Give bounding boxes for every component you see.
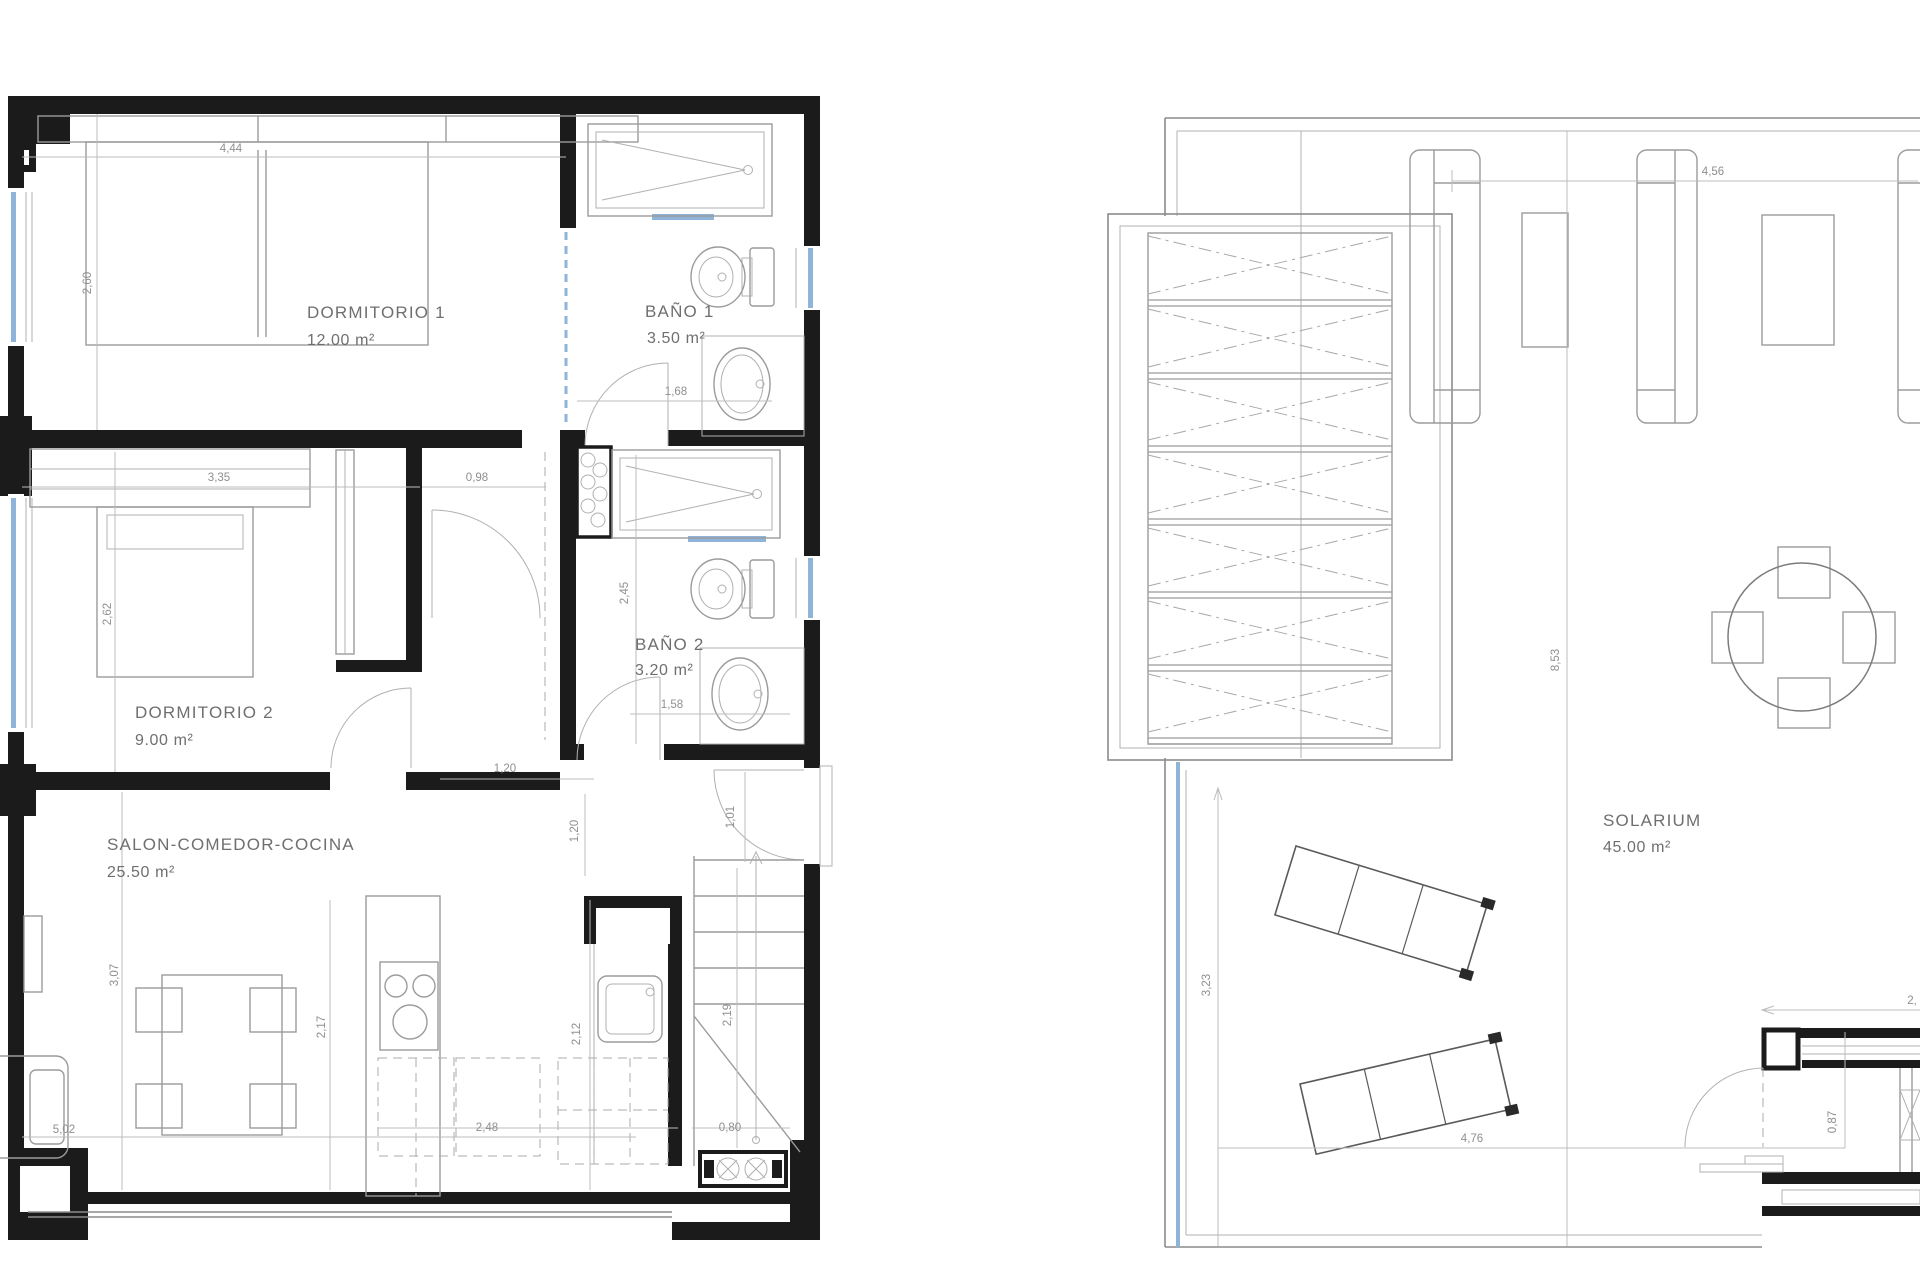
dim-salon-width: 5,02 — [53, 1124, 75, 1136]
dim-stair-width: 0,80 — [719, 1122, 741, 1134]
dim-lower-depth: 3,23 — [1201, 974, 1213, 996]
kitchen-sink-icon — [594, 944, 662, 1164]
room-area-dormitorio2: 9.00 m² — [135, 732, 194, 749]
coffee-table-icon — [1762, 215, 1834, 345]
toilet-icon — [691, 559, 774, 619]
outdoor-sofa-icon — [1898, 150, 1920, 423]
kitchen-counter — [366, 896, 440, 1196]
stairs-icon — [694, 852, 804, 1166]
dim-dorm2-width: 3,35 — [208, 472, 230, 484]
dim-dorm2-depth: 2,62 — [102, 603, 114, 625]
room-label-salon: SALON-COMEDOR-COCINA — [107, 835, 355, 854]
bano1-fixtures — [585, 124, 804, 446]
floor-plan-canvas: DORMITORIO 1 12.00 m² BAÑO 1 3.50 m² DOR… — [0, 0, 1920, 1280]
closet-icon — [30, 449, 310, 507]
dim-terrace-depth: 8,53 — [1550, 649, 1562, 671]
roof-boundary — [1165, 118, 1920, 1247]
floor-plan-page: DORMITORIO 1 12.00 m² BAÑO 1 3.50 m² DOR… — [0, 0, 1920, 1280]
dim-lower-width: 4,76 — [1461, 1133, 1483, 1145]
room-label-dormitorio2: DORMITORIO 2 — [135, 703, 274, 722]
dim-stair-depth: 2,19 — [722, 1004, 734, 1026]
dim-terrace-width: 4,56 — [1702, 166, 1724, 178]
room-area-bano2: 3.20 m² — [635, 662, 694, 679]
outdoor-seating — [1410, 150, 1920, 423]
toilet-icon — [691, 247, 774, 307]
room-area-salon: 25.50 m² — [107, 864, 175, 881]
room-labels: SOLARIUM 45.00 m² — [1603, 811, 1701, 856]
room-label-bano2: BAÑO 2 — [635, 635, 705, 654]
room-label-solarium: SOLARIUM — [1603, 811, 1701, 830]
closet-icon — [38, 116, 638, 142]
dim-salon-depth: 3,07 — [109, 964, 121, 986]
right-plan: SOLARIUM 45.00 m² 4,56 8,53 3,23 4,76 0,… — [1108, 118, 1920, 1247]
dim-dorm1-depth: 2,60 — [82, 272, 94, 294]
dim-bano2-depth: 2,45 — [619, 582, 631, 604]
shower-icon — [612, 450, 780, 538]
hall-door-arc — [432, 510, 540, 618]
dimension-labels: 4,56 8,53 3,23 4,76 0,87 2, — [1201, 166, 1917, 1145]
outdoor-sofa-icon — [1410, 150, 1480, 423]
boiler-closet-icon — [577, 447, 611, 537]
dim-stair-width: 2, — [1907, 995, 1917, 1007]
sink-icon — [700, 648, 804, 744]
dim-entry-depth: 1,20 — [569, 820, 581, 842]
door-arc — [585, 363, 668, 446]
dining-table-icon — [136, 975, 296, 1135]
door-arc — [577, 677, 660, 760]
dim-bano2-width: 1,58 — [661, 699, 683, 711]
bed-icon — [97, 507, 253, 677]
dim-kitchen-depth: 2,17 — [316, 1016, 328, 1038]
dim-entry-door: 1,01 — [725, 806, 737, 828]
door-arc — [331, 688, 411, 768]
door-arc — [1685, 1068, 1783, 1172]
dim-kitchen-pass: 1,20 — [494, 763, 516, 775]
sideboard-icon — [24, 916, 42, 992]
dim-dorm1-width: 4,44 — [220, 143, 243, 155]
coffee-table-icon — [1522, 213, 1568, 347]
dim-bano1-width: 1,68 — [665, 386, 687, 398]
stair-vestibule — [1685, 1028, 1920, 1216]
vent-grill-icon — [700, 1152, 786, 1186]
walls — [0, 96, 820, 1240]
wardrobe-icon — [336, 450, 354, 654]
shower-icon — [588, 124, 772, 216]
dim-counter-depth: 2,12 — [571, 1023, 583, 1045]
round-table-icon — [1712, 547, 1895, 728]
pergola-icon — [1108, 214, 1452, 760]
room-label-bano1: BAÑO 1 — [645, 302, 715, 321]
left-plan: DORMITORIO 1 12.00 m² BAÑO 1 3.50 m² DOR… — [0, 96, 832, 1240]
sun-lounger-icon — [1273, 840, 1496, 981]
room-area-bano1: 3.50 m² — [647, 330, 706, 347]
cooktop-icon — [380, 962, 438, 1050]
base-cabinets-dashed — [378, 1058, 668, 1196]
outdoor-sofa-icon — [1637, 150, 1697, 423]
sink-icon — [702, 336, 804, 436]
dim-stair-door: 0,87 — [1827, 1111, 1839, 1133]
room-area-dormitorio1: 12.00 m² — [307, 332, 375, 349]
dim-hall-width: 0,98 — [466, 472, 488, 484]
room-label-dormitorio1: DORMITORIO 1 — [307, 303, 446, 322]
dim-island-width: 2,48 — [476, 1122, 498, 1134]
sun-lounger-icon — [1299, 1032, 1520, 1160]
room-area-solarium: 45.00 m² — [1603, 839, 1671, 856]
stairs-icon — [1900, 1068, 1920, 1172]
